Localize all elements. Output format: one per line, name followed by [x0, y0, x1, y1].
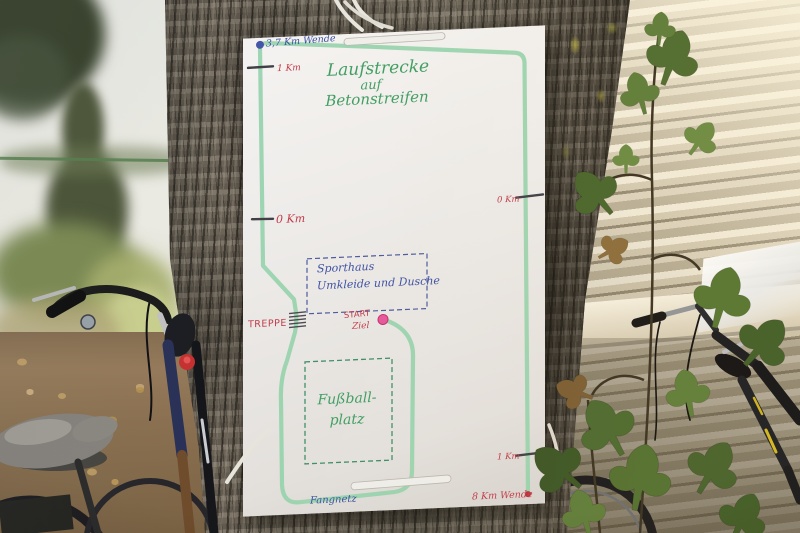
plant-leaves — [519, 11, 800, 533]
climbing-plant — [0, 0, 800, 533]
photo-scene: 3,7 Km Wende 1 Km Laufstrecke auf Betons… — [0, 0, 800, 533]
